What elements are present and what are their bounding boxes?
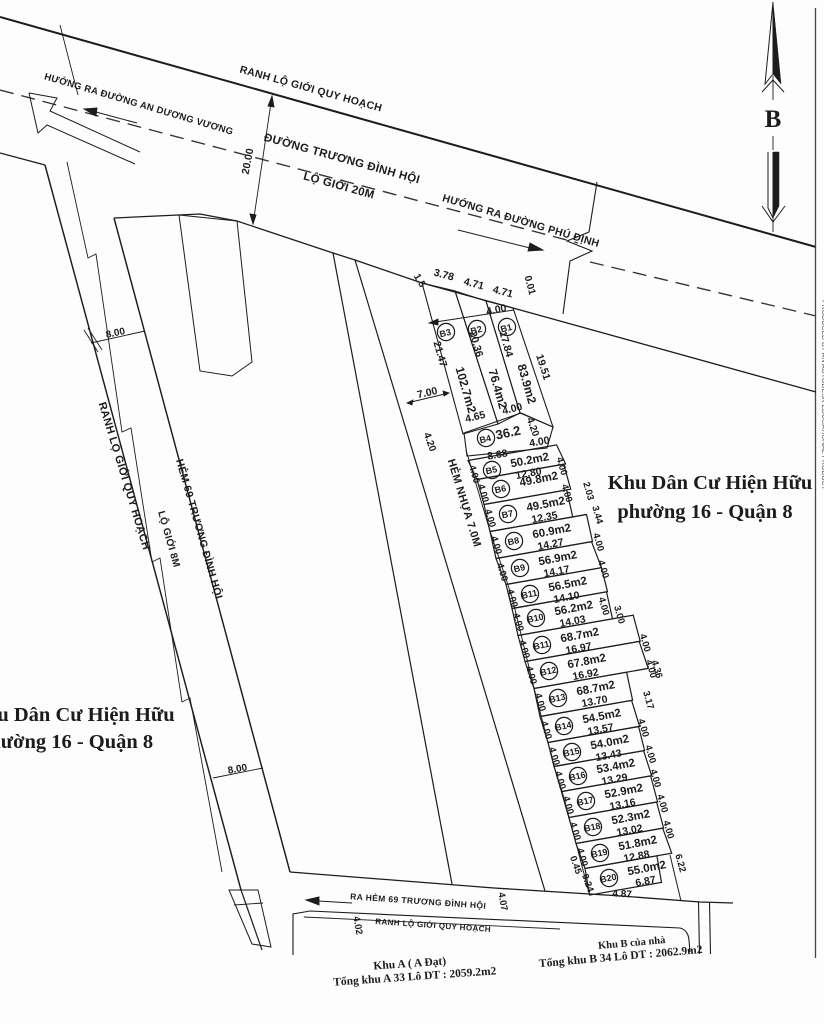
svg-text:phường 16 - Quận 8: phường 16 - Quận 8 [617, 501, 792, 523]
svg-text:Khu Dân Cư Hiện Hữu: Khu Dân Cư Hiện Hữu [608, 472, 813, 494]
svg-text:PRODUCED BY AN AUTODESK EDUCAT: PRODUCED BY AN AUTODESK EDUCATIONAL PROD… [820, 300, 824, 491]
svg-text:B: B [765, 106, 782, 133]
svg-text:4.87: 4.87 [612, 889, 632, 901]
svg-text:phường 16 - Quận 8: phường 16 - Quận 8 [0, 731, 153, 753]
svg-text:Khu Dân Cư Hiện Hữu: Khu Dân Cư Hiện Hữu [0, 704, 175, 726]
